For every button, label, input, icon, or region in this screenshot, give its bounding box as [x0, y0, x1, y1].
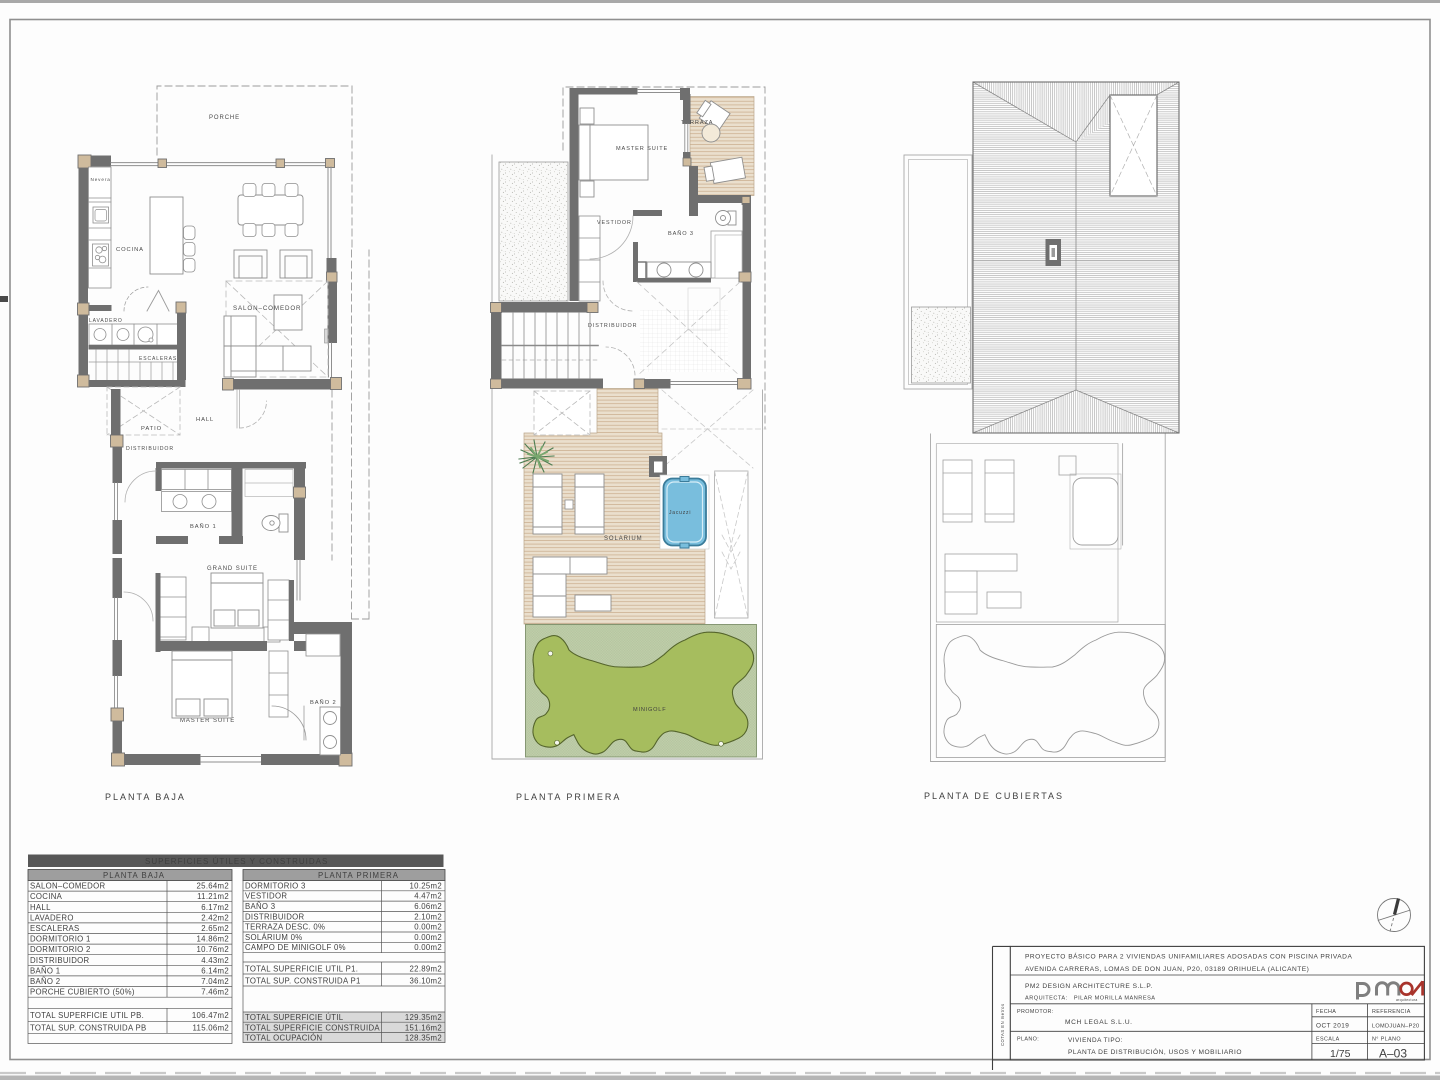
svg-text:Jacuzzi: Jacuzzi — [669, 510, 691, 516]
svg-text:VIVIENDA TIPO:: VIVIENDA TIPO: — [1068, 1037, 1123, 1044]
svg-text:7.46m2: 7.46m2 — [201, 988, 229, 997]
svg-text:TOTAL SUP. CONSTRUIDA P1: TOTAL SUP. CONSTRUIDA P1 — [245, 977, 361, 986]
svg-text:0.00m2: 0.00m2 — [414, 933, 442, 942]
svg-text:COCINA: COCINA — [30, 892, 63, 901]
svg-text:PROYECTO BÁSICO PARA 2 VIV: PROYECTO BÁSICO PARA 2 VIVIENDAS UNIFAMI… — [1025, 952, 1352, 961]
svg-text:COTAS EN metros: COTAS EN metros — [1000, 1003, 1005, 1046]
svg-text:PROMOTOR:: PROMOTOR: — [1017, 1009, 1054, 1015]
svg-text:106.47m2: 106.47m2 — [192, 1011, 229, 1020]
svg-text:DISTRIBUIDOR: DISTRIBUIDOR — [245, 912, 305, 921]
svg-text:ESCALA: ESCALA — [1316, 1037, 1340, 1043]
svg-text:ESCALERAS: ESCALERAS — [30, 924, 80, 933]
svg-text:BAÑO 2: BAÑO 2 — [30, 977, 60, 986]
svg-text:MCH LEGAL S.L.U.: MCH LEGAL S.L.U. — [1065, 1019, 1133, 1026]
svg-text:LOMDJUAN–P20: LOMDJUAN–P20 — [1372, 1024, 1419, 1030]
svg-text:BAÑO 1: BAÑO 1 — [190, 523, 217, 530]
svg-text:DISTRIBUIDOR: DISTRIBUIDOR — [126, 446, 174, 452]
svg-text:11.21m2: 11.21m2 — [197, 892, 229, 901]
svg-text:6.17m2: 6.17m2 — [201, 903, 229, 912]
svg-text:2.10m2: 2.10m2 — [414, 912, 442, 921]
svg-text:COCINA: COCINA — [116, 247, 144, 253]
svg-text:BAÑO 3: BAÑO 3 — [245, 902, 275, 911]
svg-text:HALL: HALL — [196, 417, 214, 423]
svg-text:22.89m2: 22.89m2 — [410, 965, 442, 974]
svg-text:BAÑO 1: BAÑO 1 — [30, 966, 60, 975]
svg-text:BAÑO 3: BAÑO 3 — [668, 230, 694, 237]
svg-text:DORMITORIO 3: DORMITORIO 3 — [245, 881, 306, 890]
svg-text:MASTER SUITE: MASTER SUITE — [180, 718, 235, 724]
svg-text:BAÑO 2: BAÑO 2 — [310, 699, 337, 706]
svg-text:ESCALERAS: ESCALERAS — [139, 356, 177, 362]
svg-text:HALL: HALL — [30, 903, 51, 912]
svg-text:ARQUITECTA: PILAR MORILLA: ARQUITECTA: PILAR MORILLA MANRESA — [1025, 996, 1156, 1002]
svg-text:PLANTA BAJA: PLANTA BAJA — [103, 871, 165, 880]
svg-text:VESTIDOR: VESTIDOR — [597, 220, 632, 226]
svg-text:CAMPO DE MINIGOLF 0%: CAMPO DE MINIGOLF 0% — [245, 943, 346, 952]
svg-text:PORCHE CUBIERTO (50%): PORCHE CUBIERTO (50%) — [30, 988, 135, 997]
svg-text:6.06m2: 6.06m2 — [414, 902, 442, 911]
svg-text:0.00m2: 0.00m2 — [414, 923, 442, 932]
svg-text:TOTAL SUPERFICIE UTIL P1.: TOTAL SUPERFICIE UTIL P1. — [245, 965, 358, 974]
svg-text:MASTER SUITE: MASTER SUITE — [616, 146, 668, 152]
svg-text:TOTAL SUPERFICIE UTIL PB.: TOTAL SUPERFICIE UTIL PB. — [30, 1011, 144, 1020]
svg-text:SOLARIUM: SOLARIUM — [604, 536, 643, 542]
svg-text:4.43m2: 4.43m2 — [201, 956, 229, 965]
svg-text:REFERENCIA: REFERENCIA — [1372, 1009, 1411, 1015]
svg-text:2.42m2: 2.42m2 — [201, 913, 229, 922]
svg-text:PLANTA DE DISTRIBUCIÓN, USO: PLANTA DE DISTRIBUCIÓN, USOS Y MOBILIARI… — [1068, 1047, 1242, 1056]
svg-text:TOTAL SUP. CONSTRUIDA PB: TOTAL SUP. CONSTRUIDA PB — [30, 1024, 147, 1033]
svg-text:A–03: A–03 — [1379, 1047, 1407, 1061]
svg-text:PLANTA PRIMERA: PLANTA PRIMERA — [318, 871, 399, 880]
svg-text:LAVADERO: LAVADERO — [30, 913, 74, 922]
svg-text:7.04m2: 7.04m2 — [201, 977, 229, 986]
svg-text:GRAND SUITE: GRAND SUITE — [207, 566, 258, 572]
svg-text:LAVADERO: LAVADERO — [89, 318, 123, 324]
svg-text:Nevera: Nevera — [91, 177, 111, 182]
svg-text:129.35m2: 129.35m2 — [405, 1013, 442, 1022]
svg-text:TOTAL SUPERFICIE CONSTRUIDA: TOTAL SUPERFICIE CONSTRUIDA — [245, 1023, 380, 1032]
svg-text:MINIGOLF: MINIGOLF — [633, 707, 666, 713]
svg-text:DISTRIBUIDOR: DISTRIBUIDOR — [30, 956, 90, 965]
svg-text:OCT 2019: OCT 2019 — [1316, 1023, 1349, 1030]
svg-text:TERRAZA DESC. 0%: TERRAZA DESC. 0% — [245, 923, 325, 932]
svg-text:PLANTA DE CUBIERTAS: PLANTA DE CUBIERTAS — [924, 791, 1064, 801]
svg-text:TOTAL SUPERFICIE ÚTIL: TOTAL SUPERFICIE ÚTIL — [245, 1013, 344, 1022]
svg-text:4.47m2: 4.47m2 — [414, 892, 442, 901]
svg-text:TOTAL OCUPACIÓN: TOTAL OCUPACIÓN — [245, 1034, 322, 1043]
svg-text:SALON–COMEDOR: SALON–COMEDOR — [233, 305, 301, 312]
svg-text:PATIO: PATIO — [141, 426, 162, 432]
svg-text:36.10m2: 36.10m2 — [410, 977, 442, 986]
svg-text:AVENIDA CARRERAS, LOMAS DE: AVENIDA CARRERAS, LOMAS DE DON JUAN, P20… — [1025, 966, 1309, 973]
svg-text:115.06m2: 115.06m2 — [193, 1024, 230, 1033]
svg-text:PORCHE: PORCHE — [209, 115, 240, 121]
svg-text:128.35m2: 128.35m2 — [405, 1034, 442, 1043]
svg-text:25.64m2: 25.64m2 — [197, 882, 229, 891]
svg-text:VESTIDOR: VESTIDOR — [245, 892, 287, 901]
svg-text:10.76m2: 10.76m2 — [197, 945, 229, 954]
svg-text:14.86m2: 14.86m2 — [197, 935, 229, 944]
svg-text:PLANTA BAJA: PLANTA BAJA — [105, 792, 186, 802]
svg-text:DORMITORIO 1: DORMITORIO 1 — [30, 935, 91, 944]
svg-text:SUPERFICIES ÚTILES Y CONSTR: SUPERFICIES ÚTILES Y CONSTRUIDAS — [145, 857, 328, 866]
svg-text:PLANTA PRIMERA: PLANTA PRIMERA — [516, 792, 621, 802]
svg-text:SALON–COMEDOR: SALON–COMEDOR — [30, 882, 105, 891]
svg-text:151.16m2: 151.16m2 — [405, 1023, 442, 1032]
svg-text:arquitectura: arquitectura — [1396, 998, 1418, 1002]
svg-text:FECHA: FECHA — [1316, 1009, 1336, 1015]
svg-text:N° PLANO: N° PLANO — [1372, 1037, 1401, 1043]
svg-text:0.00m2: 0.00m2 — [414, 943, 442, 952]
svg-text:PLANO:: PLANO: — [1017, 1037, 1039, 1043]
svg-text:SOLÁRIUM 0%: SOLÁRIUM 0% — [245, 933, 302, 942]
svg-text:DORMITORIO 2: DORMITORIO 2 — [30, 945, 91, 954]
svg-text:2.65m2: 2.65m2 — [201, 924, 229, 933]
svg-text:10.25m2: 10.25m2 — [410, 881, 442, 890]
svg-text:6.14m2: 6.14m2 — [201, 966, 229, 975]
svg-text:PM2 DESIGN ARCHITECTURE S.L: PM2 DESIGN ARCHITECTURE S.L.P. — [1025, 983, 1153, 990]
svg-text:DISTRIBUIDOR: DISTRIBUIDOR — [588, 323, 637, 329]
svg-text:1/75: 1/75 — [1330, 1048, 1351, 1060]
